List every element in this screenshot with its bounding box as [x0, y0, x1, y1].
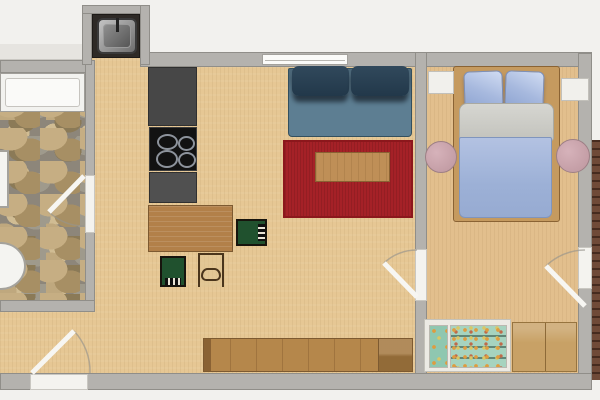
sideboard	[203, 338, 413, 372]
chair-back-slats	[258, 224, 265, 241]
kitchen-sink	[97, 18, 137, 54]
right-door-gap	[578, 247, 592, 289]
bathroom-door-gap	[85, 175, 95, 233]
cooktop	[149, 127, 197, 171]
burner-back-left	[157, 134, 178, 150]
bed-blanket-fold	[459, 103, 554, 141]
nightstand-left	[428, 71, 454, 94]
bed-duvet	[459, 137, 552, 218]
living-room-window	[262, 54, 348, 65]
wall-right	[578, 53, 592, 378]
sofa-cushion-left	[292, 66, 349, 96]
sofa-cushion-right	[351, 66, 409, 96]
wall-top-main	[140, 52, 592, 67]
window-pane-line	[265, 60, 345, 61]
burner-back-right	[178, 136, 195, 151]
sink-faucet	[116, 18, 119, 32]
dining-chair-frame	[198, 253, 224, 287]
kitchen-counter-bottom	[149, 172, 197, 203]
wall-bottom	[0, 373, 592, 390]
pouf-left	[425, 141, 457, 173]
pouf-right	[556, 139, 590, 173]
dresser	[512, 322, 577, 372]
dresser-door-split	[545, 323, 546, 371]
kitchen-counter-top	[148, 67, 197, 126]
burner-front-right	[178, 152, 196, 168]
outside-brick-strip	[592, 140, 600, 380]
bathtub-basin	[5, 78, 80, 107]
wall-bathroom-bottom	[0, 300, 95, 312]
dining-table	[148, 205, 233, 252]
bookshelf-shelves	[450, 325, 507, 368]
wall-top-bathroom	[0, 60, 88, 73]
nightstand-right	[561, 78, 589, 101]
bookshelf-left-compartment	[429, 325, 448, 368]
burner-front-left	[156, 150, 178, 168]
bathtub	[0, 73, 85, 112]
entrance-door-gap	[30, 374, 88, 390]
sideboard-right-section	[378, 339, 412, 371]
floor-plan	[0, 0, 600, 400]
chair-front-rail	[201, 268, 221, 281]
sink-niche-wall-left	[82, 5, 92, 65]
bookshelf	[424, 319, 511, 372]
coffee-table	[315, 152, 390, 182]
exterior-ledge	[0, 44, 82, 60]
chair-back-slats	[165, 278, 181, 285]
sink-niche-wall-right	[140, 5, 150, 65]
bedroom-door-gap	[415, 249, 427, 301]
washbasin	[0, 150, 9, 208]
dining-chair-right	[236, 219, 267, 246]
dining-chair-bottom	[160, 256, 186, 287]
